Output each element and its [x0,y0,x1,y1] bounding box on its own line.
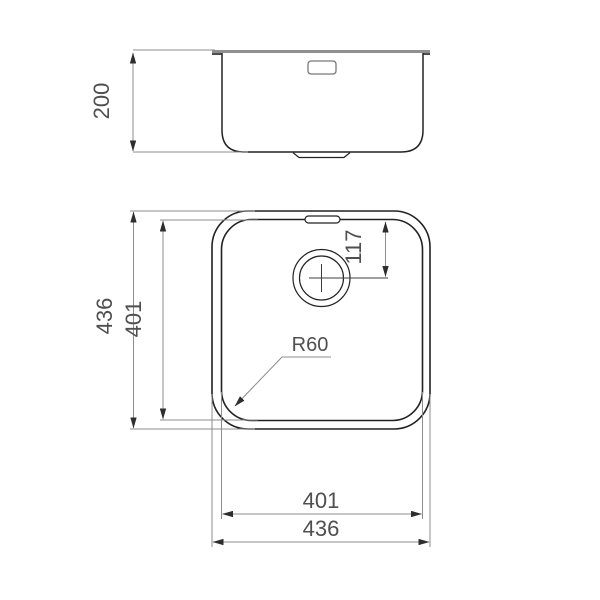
radius-leader-arrow [235,357,282,406]
depth-dimension-label: 200 [89,83,114,120]
drain-boss-side [293,153,350,158]
bowl-height-label: 401 [121,301,146,338]
plan-view: 117 R60 436 401 401 436 [92,211,430,547]
overflow-slot-plan [305,216,340,223]
overall-width-label: 436 [303,516,340,541]
bowl-width-label: 401 [303,488,340,513]
drain-offset-label: 117 [341,229,366,264]
overall-height-label: 436 [92,298,117,335]
overflow-opening-side [308,61,336,74]
technical-drawing-canvas: 200 117 R60 436 401 [0,0,600,600]
radius-label: R60 [292,334,329,356]
side-elevation-view: 200 [89,50,430,158]
